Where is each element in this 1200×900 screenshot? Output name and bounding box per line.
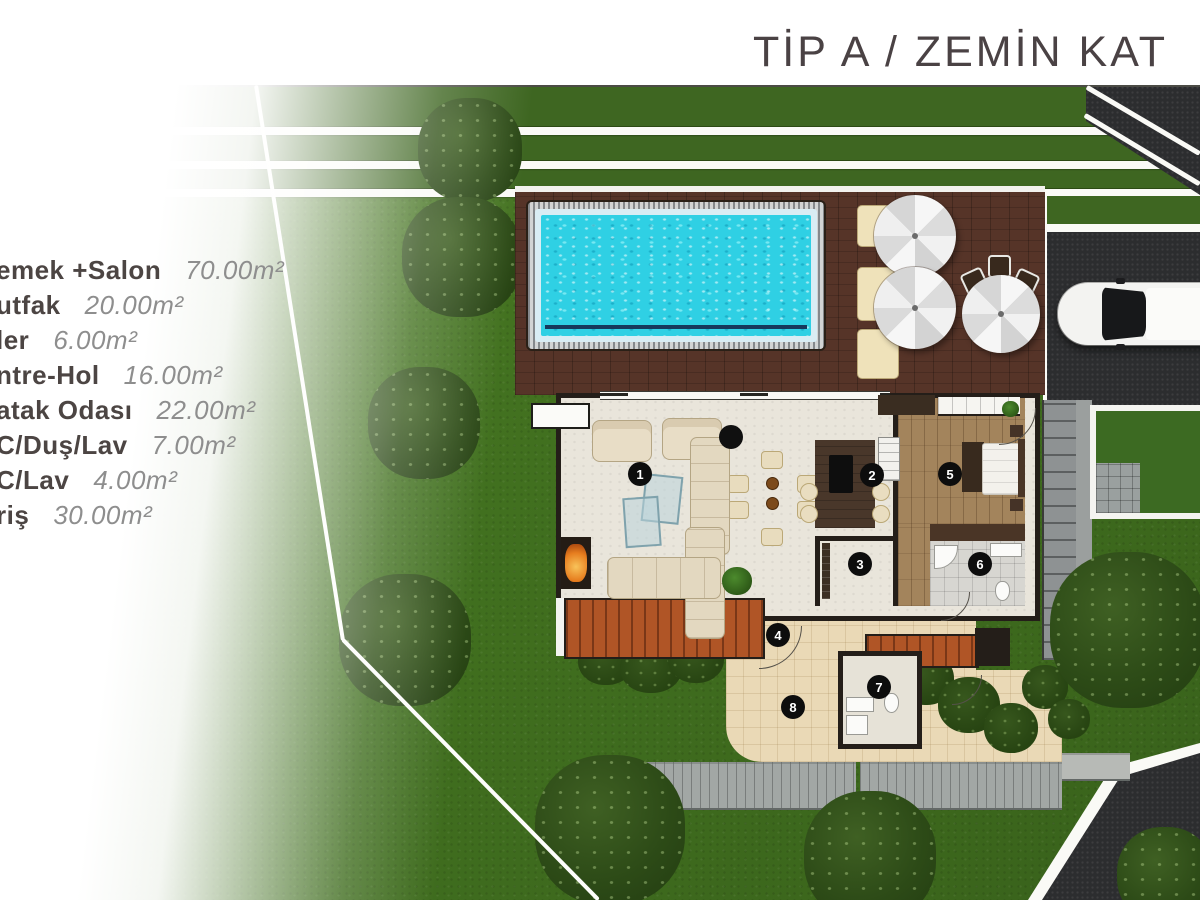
- white-stripe: [0, 126, 1200, 135]
- legend-room-area: 7.00m²: [152, 430, 236, 461]
- armchair: [592, 420, 652, 462]
- room-marker-mutfak: 2: [860, 463, 884, 487]
- sink: [990, 543, 1022, 557]
- dining-chair: [727, 475, 749, 493]
- planter-ledge: [531, 403, 590, 429]
- floorplan-page: { "title": "TİP A / ZEMİN KAT", "legend"…: [0, 0, 1200, 900]
- patio-umbrella: [874, 195, 956, 277]
- bar-stool: [800, 505, 818, 523]
- legend-room-area: 4.00m²: [93, 465, 177, 496]
- patio-umbrella: [962, 275, 1040, 353]
- bush: [1048, 699, 1090, 739]
- legend-room-name: ler: [0, 325, 29, 356]
- site-top-border: [0, 85, 1200, 87]
- nightstand: [1010, 499, 1023, 511]
- toilet: [995, 581, 1010, 601]
- legend-room-name: riş: [0, 500, 29, 531]
- pool-rim: [535, 209, 817, 342]
- pool: [528, 202, 824, 349]
- tree: [402, 197, 522, 317]
- entry-wall: [975, 628, 1010, 666]
- bar-stool: [800, 483, 818, 501]
- car-mirror: [1116, 344, 1125, 350]
- tree: [804, 791, 936, 900]
- legend-room-area: 70.00m²: [185, 255, 284, 286]
- headboard: [1018, 439, 1025, 497]
- dining-chair: [727, 501, 749, 519]
- interior-wall: [893, 398, 898, 606]
- legend-room-area: 30.00m²: [53, 500, 152, 531]
- interior-wall: [815, 541, 820, 606]
- road-strips: [0, 85, 1200, 196]
- pool-lane-line: [545, 325, 807, 329]
- cooktop: [829, 455, 853, 493]
- legend-room-name: ntre-Hol: [0, 360, 100, 391]
- legend-room-area: 6.00m²: [53, 325, 137, 356]
- pantry-shelves: [822, 543, 830, 599]
- walled-lawn: [1090, 405, 1200, 519]
- tree: [1050, 552, 1200, 708]
- paver-patch: [1096, 463, 1140, 513]
- room-marker-yatak-odasi: 5: [938, 462, 962, 486]
- sofa: [607, 557, 721, 599]
- legend-room-name: atak Odası: [0, 395, 133, 426]
- tree: [418, 98, 522, 202]
- dining-chair: [761, 451, 783, 469]
- legend-item-yatak-odasi: atak Odası22.00m²: [0, 393, 284, 428]
- wc-sink: [846, 697, 874, 712]
- white-stripe: [0, 160, 1200, 169]
- fireplace: [561, 537, 591, 589]
- legend-room-area: 22.00m²: [157, 395, 256, 426]
- bowl: [766, 497, 779, 510]
- legend-item-wc-lav: C/Lav4.00m²: [0, 463, 284, 498]
- room-marker-yemek-salon: 1: [628, 462, 652, 486]
- legend-room-name: C/Duş/Lav: [0, 430, 128, 461]
- legend-room-area: 16.00m²: [124, 360, 223, 391]
- room-marker-kiler: 3: [848, 552, 872, 576]
- legend-room-area: 20.00m²: [85, 290, 184, 321]
- walkway-step: [1062, 753, 1130, 781]
- car-windshield: [1102, 285, 1146, 343]
- tree: [368, 367, 480, 479]
- page-title: TİP A / ZEMİN KAT: [753, 28, 1168, 77]
- bush: [984, 703, 1038, 753]
- pool-water: [541, 215, 811, 336]
- interior-wall: [815, 536, 898, 541]
- dining-chair: [761, 528, 783, 546]
- wardrobe: [930, 524, 1025, 541]
- patio-umbrella: [874, 267, 956, 349]
- terrace-edge: [556, 598, 564, 656]
- hall-wood-floor: [898, 524, 930, 606]
- legend-item-antre-hol: ntre-Hol16.00m²: [0, 358, 284, 393]
- legend-item-mutfak: utfak20.00m²: [0, 288, 284, 323]
- car-roof: [1146, 288, 1200, 340]
- bed: [982, 443, 1020, 495]
- car: [1058, 283, 1200, 345]
- legend-item-giris: riş30.00m²: [0, 498, 284, 533]
- car-mirror: [1116, 278, 1125, 284]
- bed-rug: [962, 442, 984, 492]
- legend-room-name: C/Lav: [0, 465, 69, 496]
- white-stripe: [1045, 224, 1200, 232]
- pendant-lamp: [719, 425, 743, 449]
- bar-stool: [872, 505, 890, 523]
- plant: [722, 567, 752, 595]
- legend-room-name: utfak: [0, 290, 61, 321]
- room-marker-antre-hol: 4: [766, 623, 790, 647]
- room-marker-wc-lav: 7: [867, 675, 891, 699]
- room-marker-wc-dus-lav: 6: [968, 552, 992, 576]
- bowl: [766, 477, 779, 490]
- legend-item-wc-dus-lav: C/Duş/Lav7.00m²: [0, 428, 284, 463]
- legend: emek +Salon70.00m²utfak20.00m²ler6.00m²n…: [0, 253, 284, 533]
- legend-item-kiler: ler6.00m²: [0, 323, 284, 358]
- kitchen-counter: [878, 395, 935, 415]
- glass-wall: [600, 391, 890, 400]
- terrace-pergola: [564, 598, 765, 659]
- legend-room-name: emek +Salon: [0, 255, 161, 286]
- coffee-table: [622, 496, 661, 548]
- washer: [846, 715, 868, 735]
- room-marker-giris: 8: [781, 695, 805, 719]
- legend-item-yemek-salon: emek +Salon70.00m²: [0, 253, 284, 288]
- flame: [565, 544, 587, 582]
- tree: [339, 574, 471, 706]
- tree: [535, 755, 685, 900]
